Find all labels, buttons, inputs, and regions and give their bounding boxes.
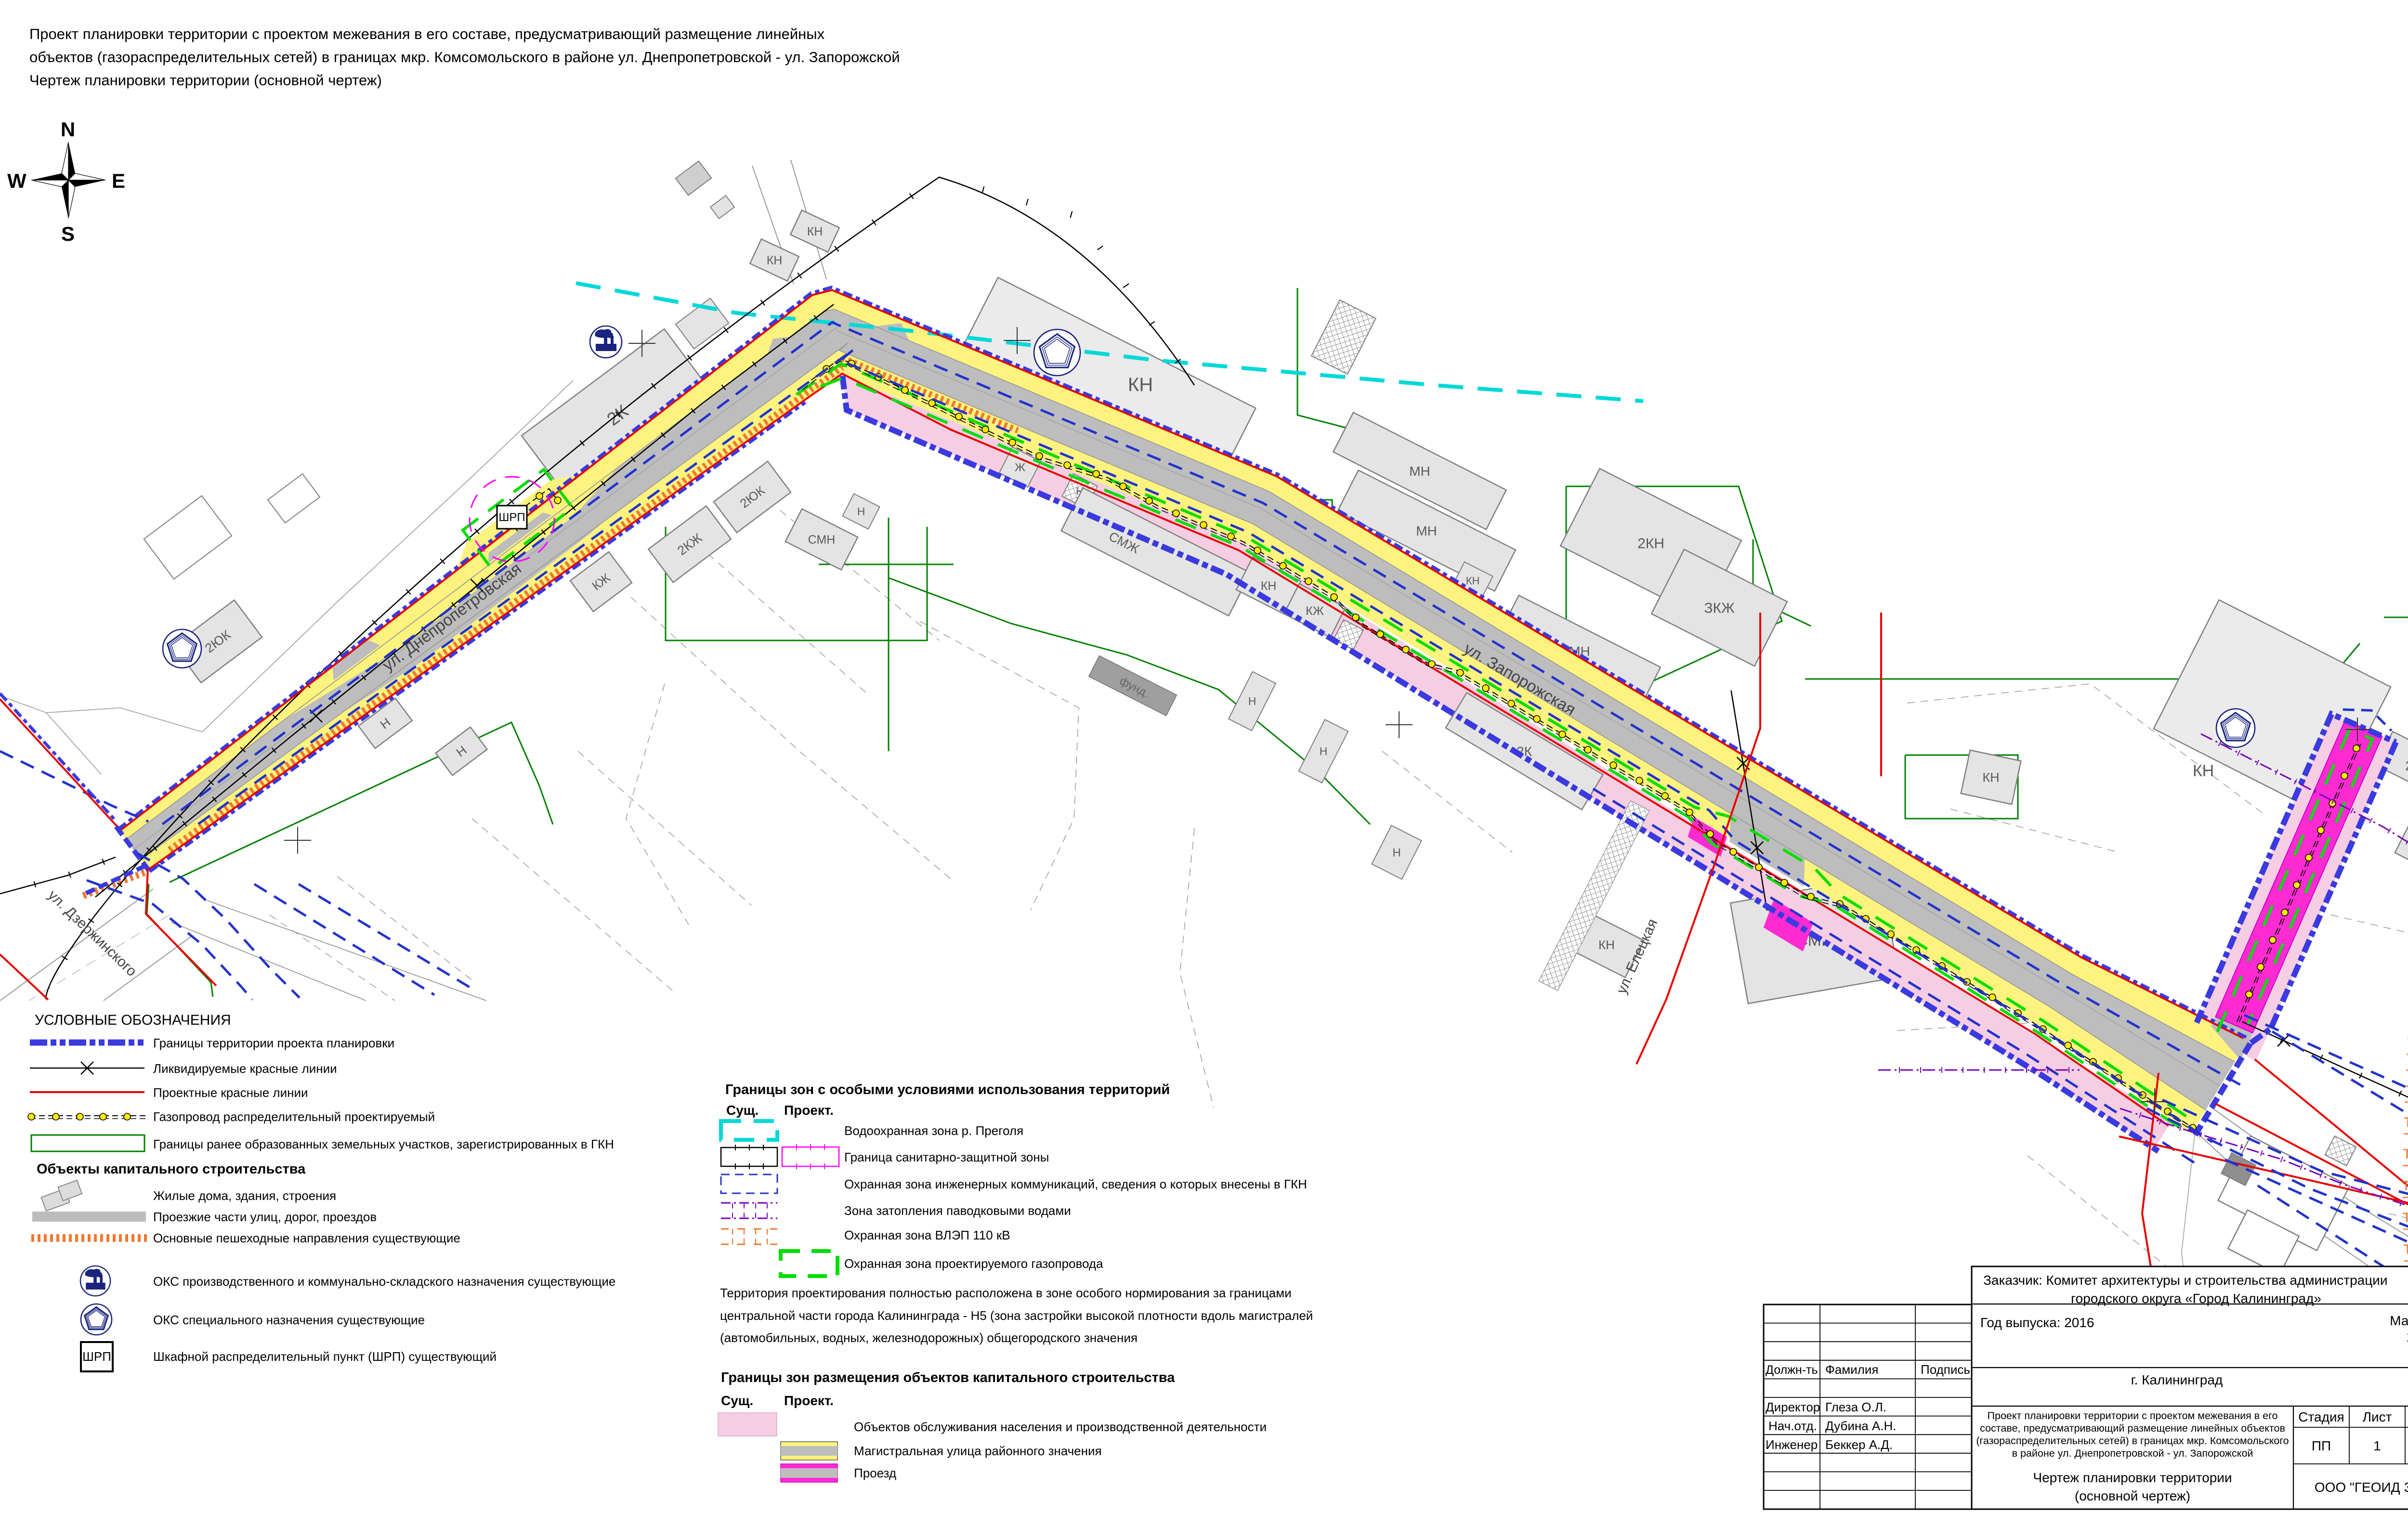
svg-text:Объекты капитального строитель: Объекты капитального строительства (37, 1161, 306, 1177)
svg-text:Должн-ть: Должн-ть (1766, 1363, 1818, 1377)
svg-text:Жилые дома, здания, строения: Жилые дома, здания, строения (153, 1188, 336, 1203)
svg-text:ООО "ГЕОИД ЗЕМ": ООО "ГЕОИД ЗЕМ" (2315, 1480, 2408, 1495)
svg-text:Проект.: Проект. (784, 1393, 834, 1408)
svg-text:Охранная зона проектируемого г: Охранная зона проектируемого газопровода (844, 1256, 1103, 1271)
svg-text:Заказчик: Комитет архитектуры: Заказчик: Комитет архитектуры и строител… (1983, 1273, 2388, 1288)
svg-text:1:1000: 1:1000 (2406, 1330, 2408, 1344)
svg-text:Ликвидируемые красные линии: Ликвидируемые красные линии (153, 1061, 337, 1076)
svg-text:Объектов обслуживания населени: Объектов обслуживания населения и произв… (854, 1420, 1267, 1434)
svg-text:Чертеж планировки территории (: Чертеж планировки территории (основной ч… (29, 72, 382, 89)
svg-text:КН: КН (807, 225, 823, 238)
svg-text:Газопровод распределительный п: Газопровод распределительный проектируем… (153, 1109, 435, 1124)
svg-text:в районе ул. Днепропетровской: в районе ул. Днепропетровской - ул. Запо… (2012, 1448, 2253, 1459)
svg-text:Проект планировки территории с: Проект планировки территории с проектом … (29, 26, 825, 42)
svg-text:составе, предусматривающий раз: составе, предусматривающий размещение ли… (1980, 1422, 2285, 1434)
svg-text:Н: Н (857, 505, 865, 518)
svg-text:центральной части города Калин: центральной части города Калининграда - … (720, 1308, 1313, 1323)
svg-text:(автомобильных, водных, железн: (автомобильных, водных, железнодорожных)… (720, 1330, 1138, 1345)
svg-text:E: E (112, 170, 125, 192)
svg-text:Инженер: Инженер (1766, 1437, 1818, 1452)
svg-text:Нач.отд.: Нач.отд. (1768, 1419, 1817, 1433)
svg-text:ОКС производственного и коммун: ОКС производственного и коммунально-скла… (153, 1274, 615, 1289)
svg-text:Беккер А.Д.: Беккер А.Д. (1825, 1437, 1893, 1452)
svg-text:КН: КН (1982, 770, 1999, 785)
svg-text:(основной чертеж): (основной чертеж) (2075, 1488, 2190, 1503)
svg-text:Магистральная улица районного: Магистральная улица районного значения (854, 1444, 1102, 1458)
svg-text:ПП: ПП (2312, 1438, 2331, 1453)
svg-text:S: S (61, 222, 75, 245)
svg-text:Масштаб: Масштаб (2390, 1313, 2408, 1328)
svg-text:Чертеж планировки территории: Чертеж планировки территории (2033, 1470, 2232, 1485)
svg-text:Глеза О.Л.: Глеза О.Л. (1825, 1400, 1886, 1414)
svg-text:Проектные красные линии: Проектные красные линии (153, 1085, 308, 1100)
svg-text:КН: КН (1598, 938, 1615, 952)
svg-text:Дубина А.Н.: Дубина А.Н. (1825, 1419, 1897, 1433)
svg-text:МН: МН (1416, 523, 1437, 538)
svg-text:Фамилия: Фамилия (1825, 1362, 1878, 1377)
svg-text:ЗКЖ: ЗКЖ (1704, 600, 1735, 616)
svg-text:N: N (61, 118, 75, 141)
svg-text:Шкафной распределительный пунк: Шкафной распределительный пункт (ШРП) су… (153, 1349, 497, 1364)
svg-text:СМН: СМН (808, 533, 836, 547)
svg-text:ОКС специального назначения су: ОКС специального назначения существующие (153, 1313, 425, 1327)
svg-text:Лист: Лист (2363, 1409, 2392, 1424)
svg-text:Подпись: Подпись (1921, 1362, 1970, 1377)
svg-text:2КЖ: 2КЖ (2405, 759, 2408, 773)
svg-text:Проезд: Проезд (854, 1466, 896, 1480)
svg-text:Границы территории проекта пла: Границы территории проекта планировки (153, 1036, 394, 1050)
svg-text:Сущ.: Сущ. (721, 1393, 753, 1408)
svg-text:Водоохранная зона р. Преголя: Водоохранная зона р. Преголя (844, 1123, 1023, 1138)
svg-text:Стадия: Стадия (2298, 1409, 2344, 1424)
svg-text:ШРП: ШРП (82, 1349, 111, 1364)
svg-text:(газораспределительных сетей): (газораспределительных сетей) в границах… (1976, 1435, 2289, 1447)
svg-text:КН: КН (767, 254, 783, 267)
svg-text:1: 1 (2373, 1438, 2381, 1453)
svg-text:Основные пешеходные направлени: Основные пешеходные направления существу… (153, 1231, 460, 1245)
svg-text:W: W (7, 170, 26, 192)
svg-text:КН: КН (1261, 579, 1277, 593)
svg-text:городского округа «Город Калин: городского округа «Город Калининград» (2071, 1291, 2321, 1306)
svg-text:УСЛОВНЫЕ ОБОЗНАЧЕНИЯ: УСЛОВНЫЕ ОБОЗНАЧЕНИЯ (35, 1012, 231, 1028)
svg-text:Н: Н (1248, 695, 1256, 707)
svg-text:2КН: 2КН (1637, 536, 1664, 552)
svg-text:объектов (газораспределительны: объектов (газораспределительных сетей) в… (29, 49, 900, 65)
svg-text:Сущ.: Сущ. (726, 1103, 759, 1118)
svg-text:Охранная зона инженерных комму: Охранная зона инженерных коммуникаций, с… (844, 1177, 1307, 1191)
svg-text:Границы зон с особыми условиям: Границы зон с особыми условиями использо… (725, 1082, 1170, 1097)
svg-text:Зона затопления паводковыми во: Зона затопления паводковыми водами (844, 1203, 1071, 1218)
svg-text:Проект.: Проект. (784, 1103, 834, 1118)
svg-text:г. Калининград: г. Калининград (2131, 1372, 2223, 1387)
svg-text:Граница санитарно-защитной зон: Граница санитарно-защитной зоны (844, 1150, 1049, 1164)
svg-text:МН: МН (1409, 464, 1430, 479)
svg-text:Охранная зона ВЛЭП 110 кВ: Охранная зона ВЛЭП 110 кВ (844, 1228, 1010, 1242)
svg-text:Н: Н (1392, 846, 1400, 859)
svg-text:КН: КН (1466, 575, 1480, 587)
svg-text:Ж: Ж (1015, 461, 1025, 474)
svg-text:КЖ: КЖ (1306, 604, 1324, 618)
svg-text:ШРП: ШРП (498, 511, 525, 524)
svg-text:Границы ранее образованных зем: Границы ранее образованных земельных уча… (153, 1137, 614, 1151)
svg-text:Территория проектирования полн: Территория проектирования полностью расп… (720, 1286, 1292, 1300)
svg-text:КН: КН (2193, 762, 2214, 780)
svg-text:Директор: Директор (1766, 1400, 1820, 1414)
svg-text:КН: КН (1128, 374, 1153, 395)
svg-text:Н: Н (1320, 745, 1328, 757)
svg-text:Проезжие части улиц, дорог, пр: Проезжие части улиц, дорог, проездов (153, 1210, 377, 1224)
svg-text:Проект планировки территории с: Проект планировки территории с проектом … (1988, 1410, 2278, 1422)
svg-text:Границы зон размещения объекто: Границы зон размещения объектов капиталь… (721, 1370, 1175, 1385)
svg-text:Год выпуска: 2016: Год выпуска: 2016 (1980, 1315, 2094, 1330)
